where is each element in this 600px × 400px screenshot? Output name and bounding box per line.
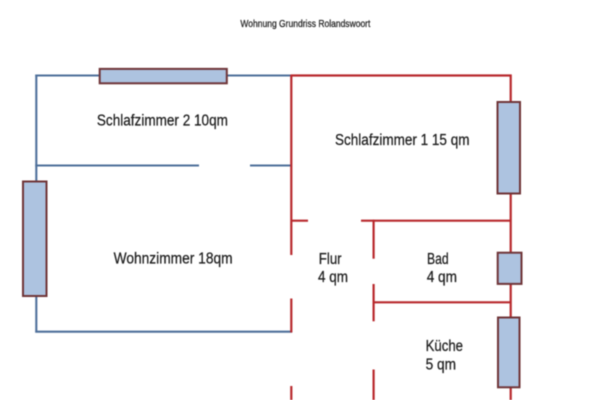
- svg-text:Wohnzimmer 18qm: Wohnzimmer 18qm: [114, 251, 233, 268]
- svg-text:Flur: Flur: [319, 251, 342, 268]
- svg-text:Küche: Küche: [426, 338, 463, 355]
- svg-text:5 qm: 5 qm: [426, 356, 456, 373]
- svg-text:Schlafzimmer 2 10qm: Schlafzimmer 2 10qm: [97, 112, 228, 129]
- svg-text:4 qm: 4 qm: [318, 269, 348, 286]
- svg-text:Bad: Bad: [427, 251, 449, 268]
- svg-text:4 qm: 4 qm: [427, 269, 457, 286]
- svg-text:Schlafzimmer 1 15 qm: Schlafzimmer 1 15 qm: [335, 132, 470, 149]
- svg-text:Wohnung Grundriss Rolandswoort: Wohnung Grundriss Rolandswoort: [240, 18, 370, 30]
